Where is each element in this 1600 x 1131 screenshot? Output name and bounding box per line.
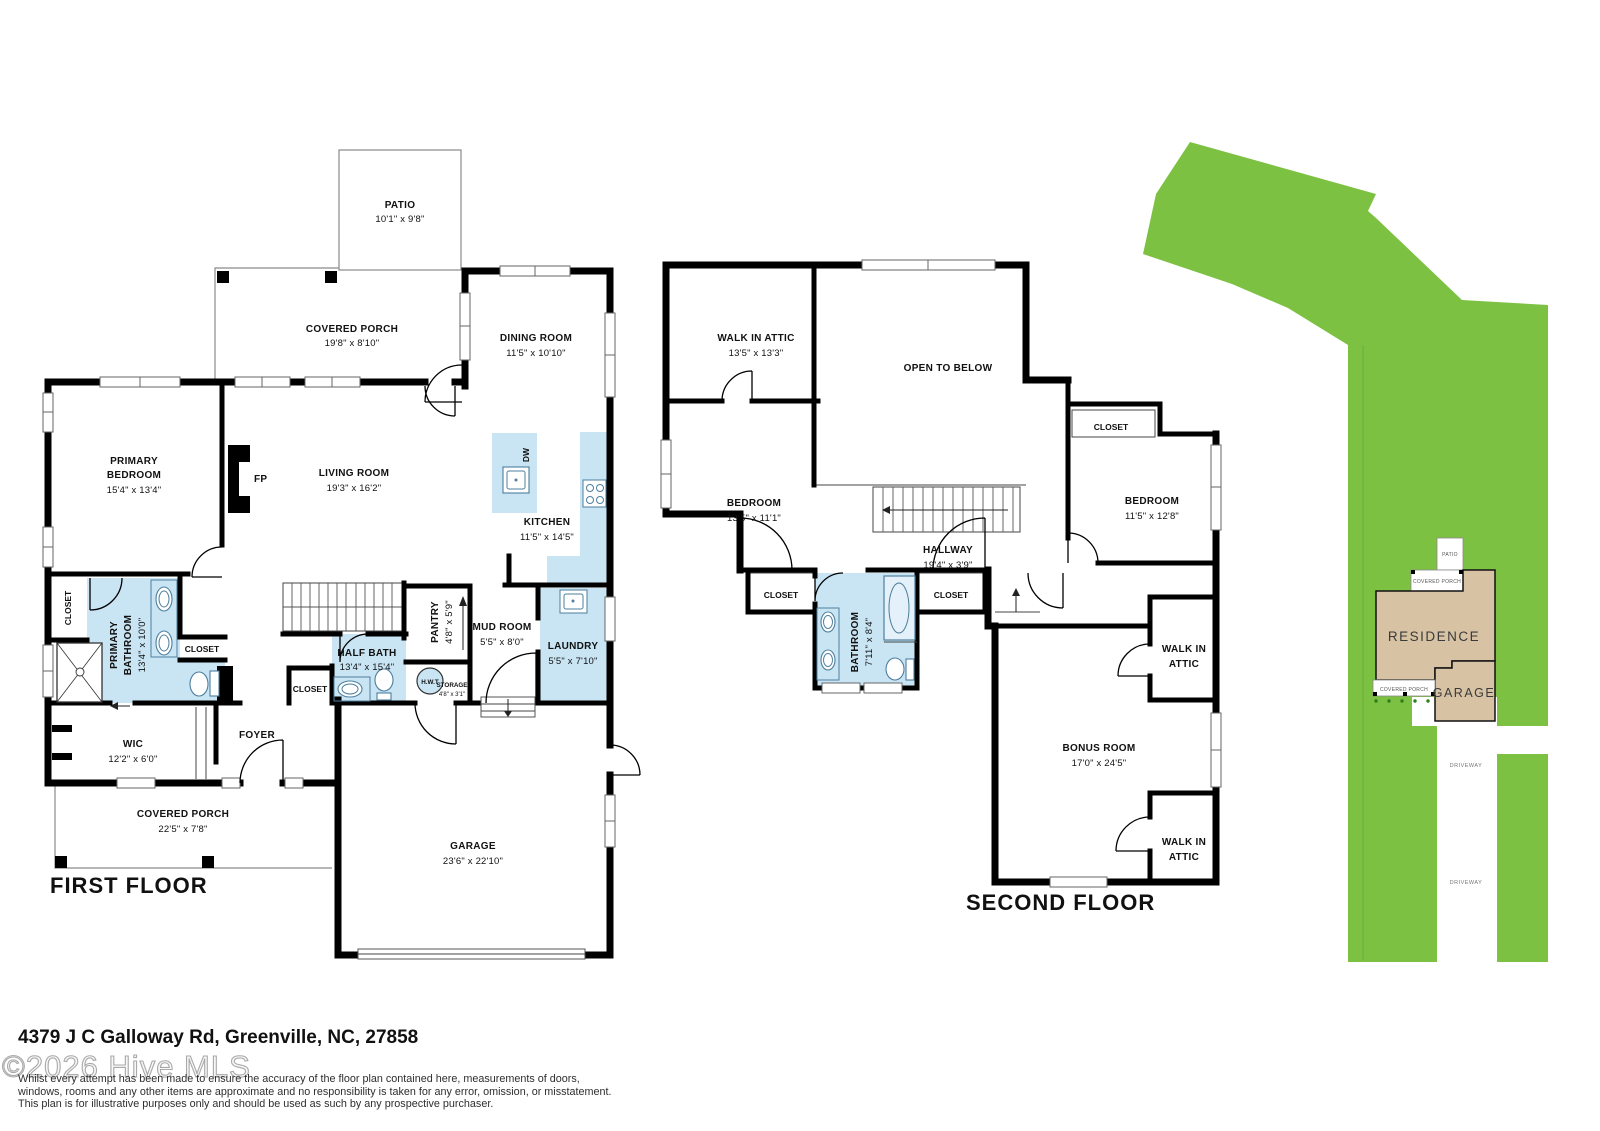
room-label-bedroom-left: BEDROOM [727,498,781,509]
second-floor-plan: WALK IN ATTIC 13'5" x 13'3" OPEN TO BELO… [661,260,1221,915]
room-dims-wic: 12'2" x 6'0" [108,754,157,765]
property-address: 4379 J C Galloway Rd, Greenville, NC, 27… [18,1027,418,1049]
room-label-bedroom-right: BEDROOM [1125,496,1179,507]
room-dims-bathroom: 7'11" x 8'4" [864,618,875,667]
room-label-closet-hall-left: CLOSET [764,590,799,600]
room-label-kitchen: KITCHEN [524,517,571,528]
room-dims-hallway: 19'4" x 3'9" [923,560,972,571]
room-label-hallway: HALLWAY [923,545,973,556]
room-dims-bedroom-left: 13'5" x 11'1" [727,513,781,524]
floorplan-svg: PATIO COVERED PORCH RESIDENCE GARAGE COV… [0,0,1600,1131]
room-label-covered-porch-bottom: COVERED PORCH [137,809,229,820]
first-floor-title: FIRST FLOOR [50,873,208,898]
room-label-attic-bottom: WALK IN [1162,837,1206,848]
porch-post [325,271,337,283]
floorplan-canvas: PATIO COVERED PORCH RESIDENCE GARAGE COV… [0,0,1600,1131]
floor1-labels: PATIO 10'1" x 9'8" COVERED PORCH 19'8" x… [50,200,598,898]
room-label-foyer: FOYER [239,730,275,741]
room-label-dining: DINING ROOM [500,333,572,344]
porch-post [55,856,67,868]
site-driveway-upper-label: DRIVEWAY [1450,763,1483,769]
room-label-patio: PATIO [385,200,416,211]
room-label-attic-top: WALK IN ATTIC [717,333,794,344]
room-dims-half-bath: 13'4" x 15'4" [340,662,395,673]
disclaimer-text: Whilst every attempt has been made to en… [18,1073,612,1111]
room-dims-kitchen: 11'5" x 14'5" [520,532,574,543]
svg-text:ATTIC: ATTIC [1169,659,1199,670]
room-dims-covered-porch-bottom: 22'5" x 7'8" [158,824,207,835]
room-label-half-bath: HALF BATH [337,648,396,659]
toilet [190,672,208,696]
room-dims-bedroom-right: 11'5" x 12'8" [1125,511,1179,522]
fireplace-label: FP [254,474,267,485]
room-dims-attic-top: 13'5" x 13'3" [729,348,784,359]
site-residence-label: RESIDENCE [1388,629,1480,644]
wic-shelf-lines [196,707,206,779]
room-dims-primary-bedroom: 15'4" x 13'4" [107,485,162,496]
room-label-closet-stairs: CLOSET [293,684,328,694]
room-dims-dining: 11'5" x 10'10" [506,348,565,359]
floor2-thin-outlines [748,410,1155,612]
room-label-bonus: BONUS ROOM [1063,743,1136,754]
room-label-covered-porch-top: COVERED PORCH [306,324,398,335]
porch-post [202,856,214,868]
svg-text:BATHROOM: BATHROOM [123,615,134,676]
site-porch-bottom-label: COVERED PORCH [1380,687,1428,693]
room-label-primary-bath: PRIMARY [109,621,120,669]
room-dims-pantry: 4'8" x 5'9" [444,600,455,644]
svg-text:ATTIC: ATTIC [1169,852,1199,863]
room-label-storage: STORAGE [436,682,467,689]
room-dims-storage: 4'8" x 3'1" [439,692,465,698]
fireplace-opening [239,462,250,496]
room-label-closet-left: CLOSET [63,590,73,625]
room-label-attic-mid: WALK IN [1162,644,1206,655]
room-label-garage: GARAGE [450,841,496,852]
room-dims-laundry: 5'5" x 7'10" [548,656,597,667]
room-dims-patio: 10'1" x 9'8" [375,214,424,225]
porch-post [217,271,229,283]
room-dims-covered-porch-top: 19'8" x 8'10" [325,338,380,349]
room-label-closet-hall-right: CLOSET [934,590,969,600]
room-dims-primary-bath: 13'4" x 10'0" [137,618,148,673]
room-label-pantry: PANTRY [430,601,441,643]
toilet [886,658,904,680]
garage-steps [481,697,535,717]
site-porch-top-label: COVERED PORCH [1413,579,1461,585]
room-label-closet-top-right: CLOSET [1094,422,1129,432]
room-dims-mud-room: 5'5" x 8'0" [480,637,524,648]
second-floor-title: SECOND FLOOR [966,890,1155,915]
room-dims-bonus: 17'0" x 24'5" [1072,758,1127,769]
site-driveway-lower-label: DRIVEWAY [1450,880,1483,886]
room-label-bathroom: BATHROOM [850,612,861,673]
disclaimer-line-3: This plan is for illustrative purposes o… [18,1098,612,1111]
room-dims-garage: 23'6" x 22'10" [443,856,503,867]
disclaimer-line-1: Whilst every attempt has been made to en… [18,1073,612,1086]
room-label-wic: WIC [123,739,143,750]
room-label-closet-vanity: CLOSET [185,644,220,654]
room-label-laundry: LAUNDRY [548,641,599,652]
site-garage-label: GARAGE [1433,686,1496,700]
disclaimer-line-2: windows, rooms and any other items are a… [18,1086,612,1099]
room-dims-living: 19'3" x 16'2" [327,483,382,494]
svg-text:BEDROOM: BEDROOM [107,470,161,481]
room-label-living: LIVING ROOM [319,468,390,479]
dishwasher-label: DW [521,447,531,462]
room-label-open-below: OPEN TO BELOW [904,363,993,374]
room-label-mud-room: MUD ROOM [472,622,531,633]
first-floor-plan: PATIO 10'1" x 9'8" COVERED PORCH 19'8" x… [43,150,640,959]
site-patio-label: PATIO [1442,552,1458,558]
room-label-primary-bedroom: PRIMARY [110,456,158,467]
